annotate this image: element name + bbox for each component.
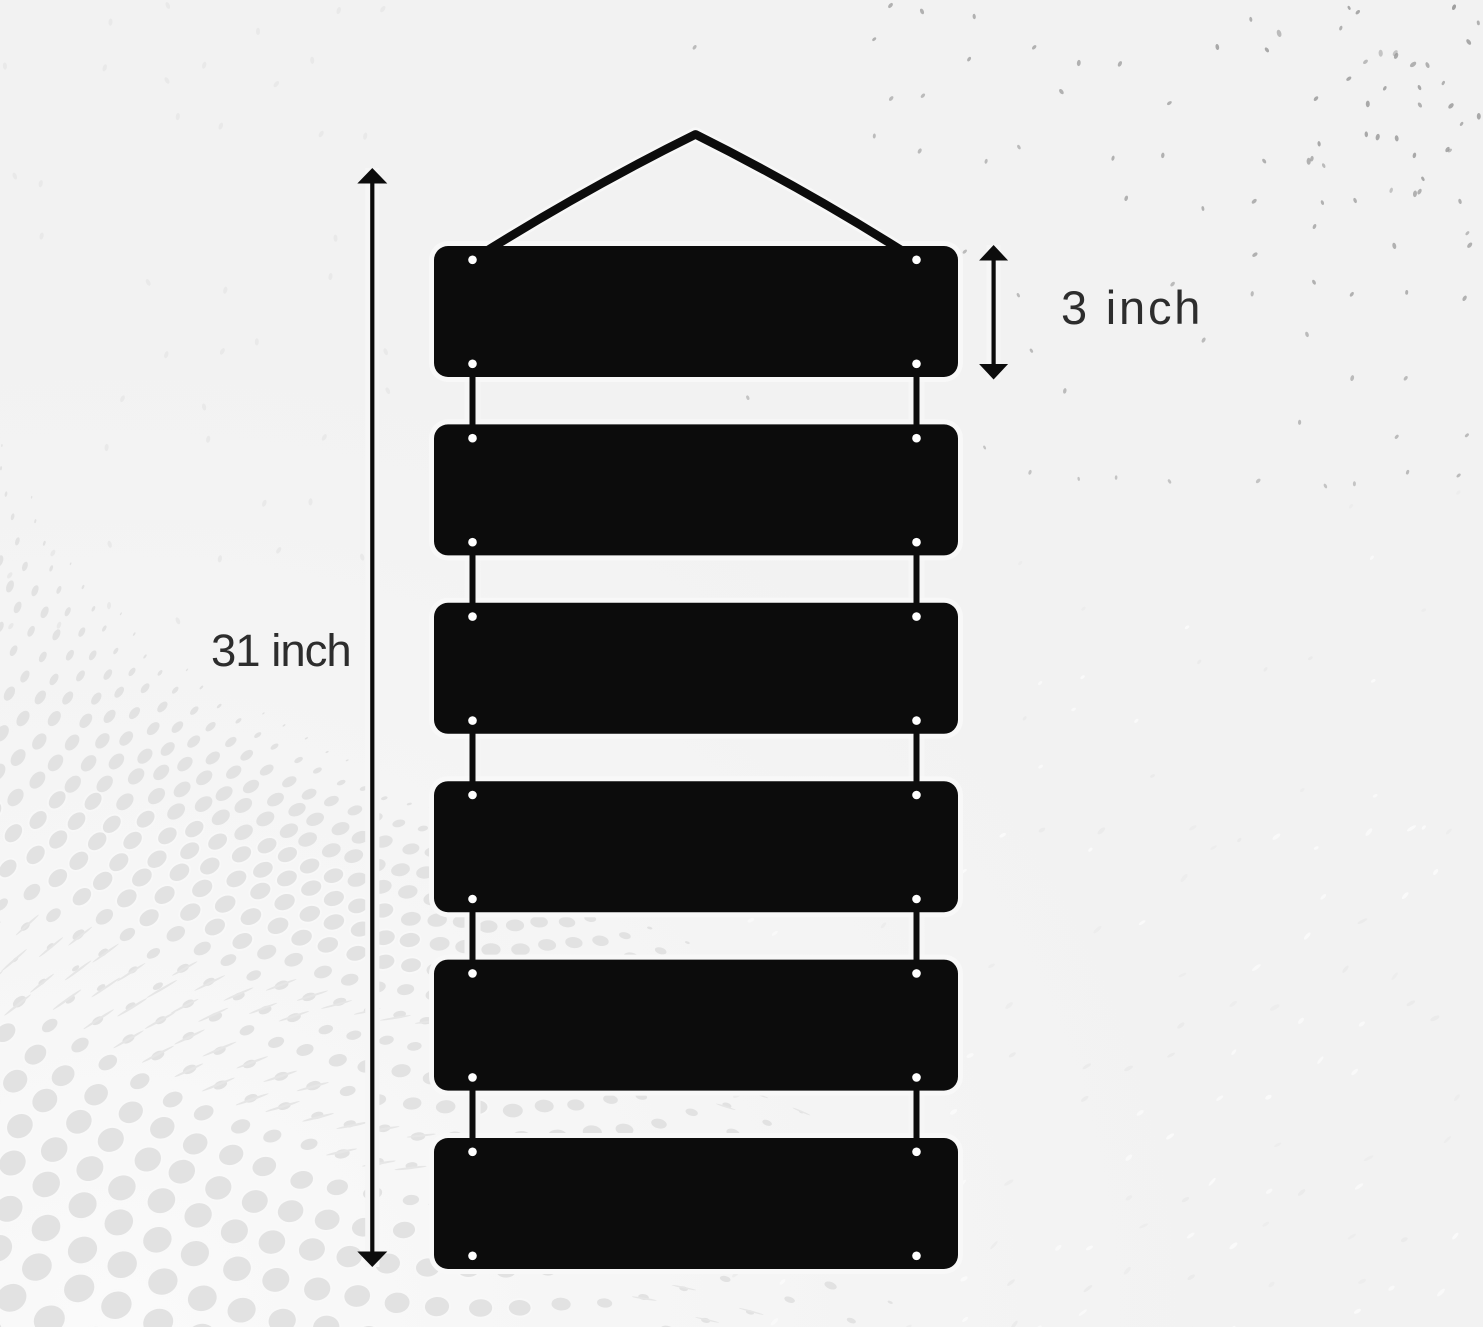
svg-text:31 inch: 31 inch xyxy=(211,625,351,676)
svg-text:3 inch: 3 inch xyxy=(1061,281,1203,334)
